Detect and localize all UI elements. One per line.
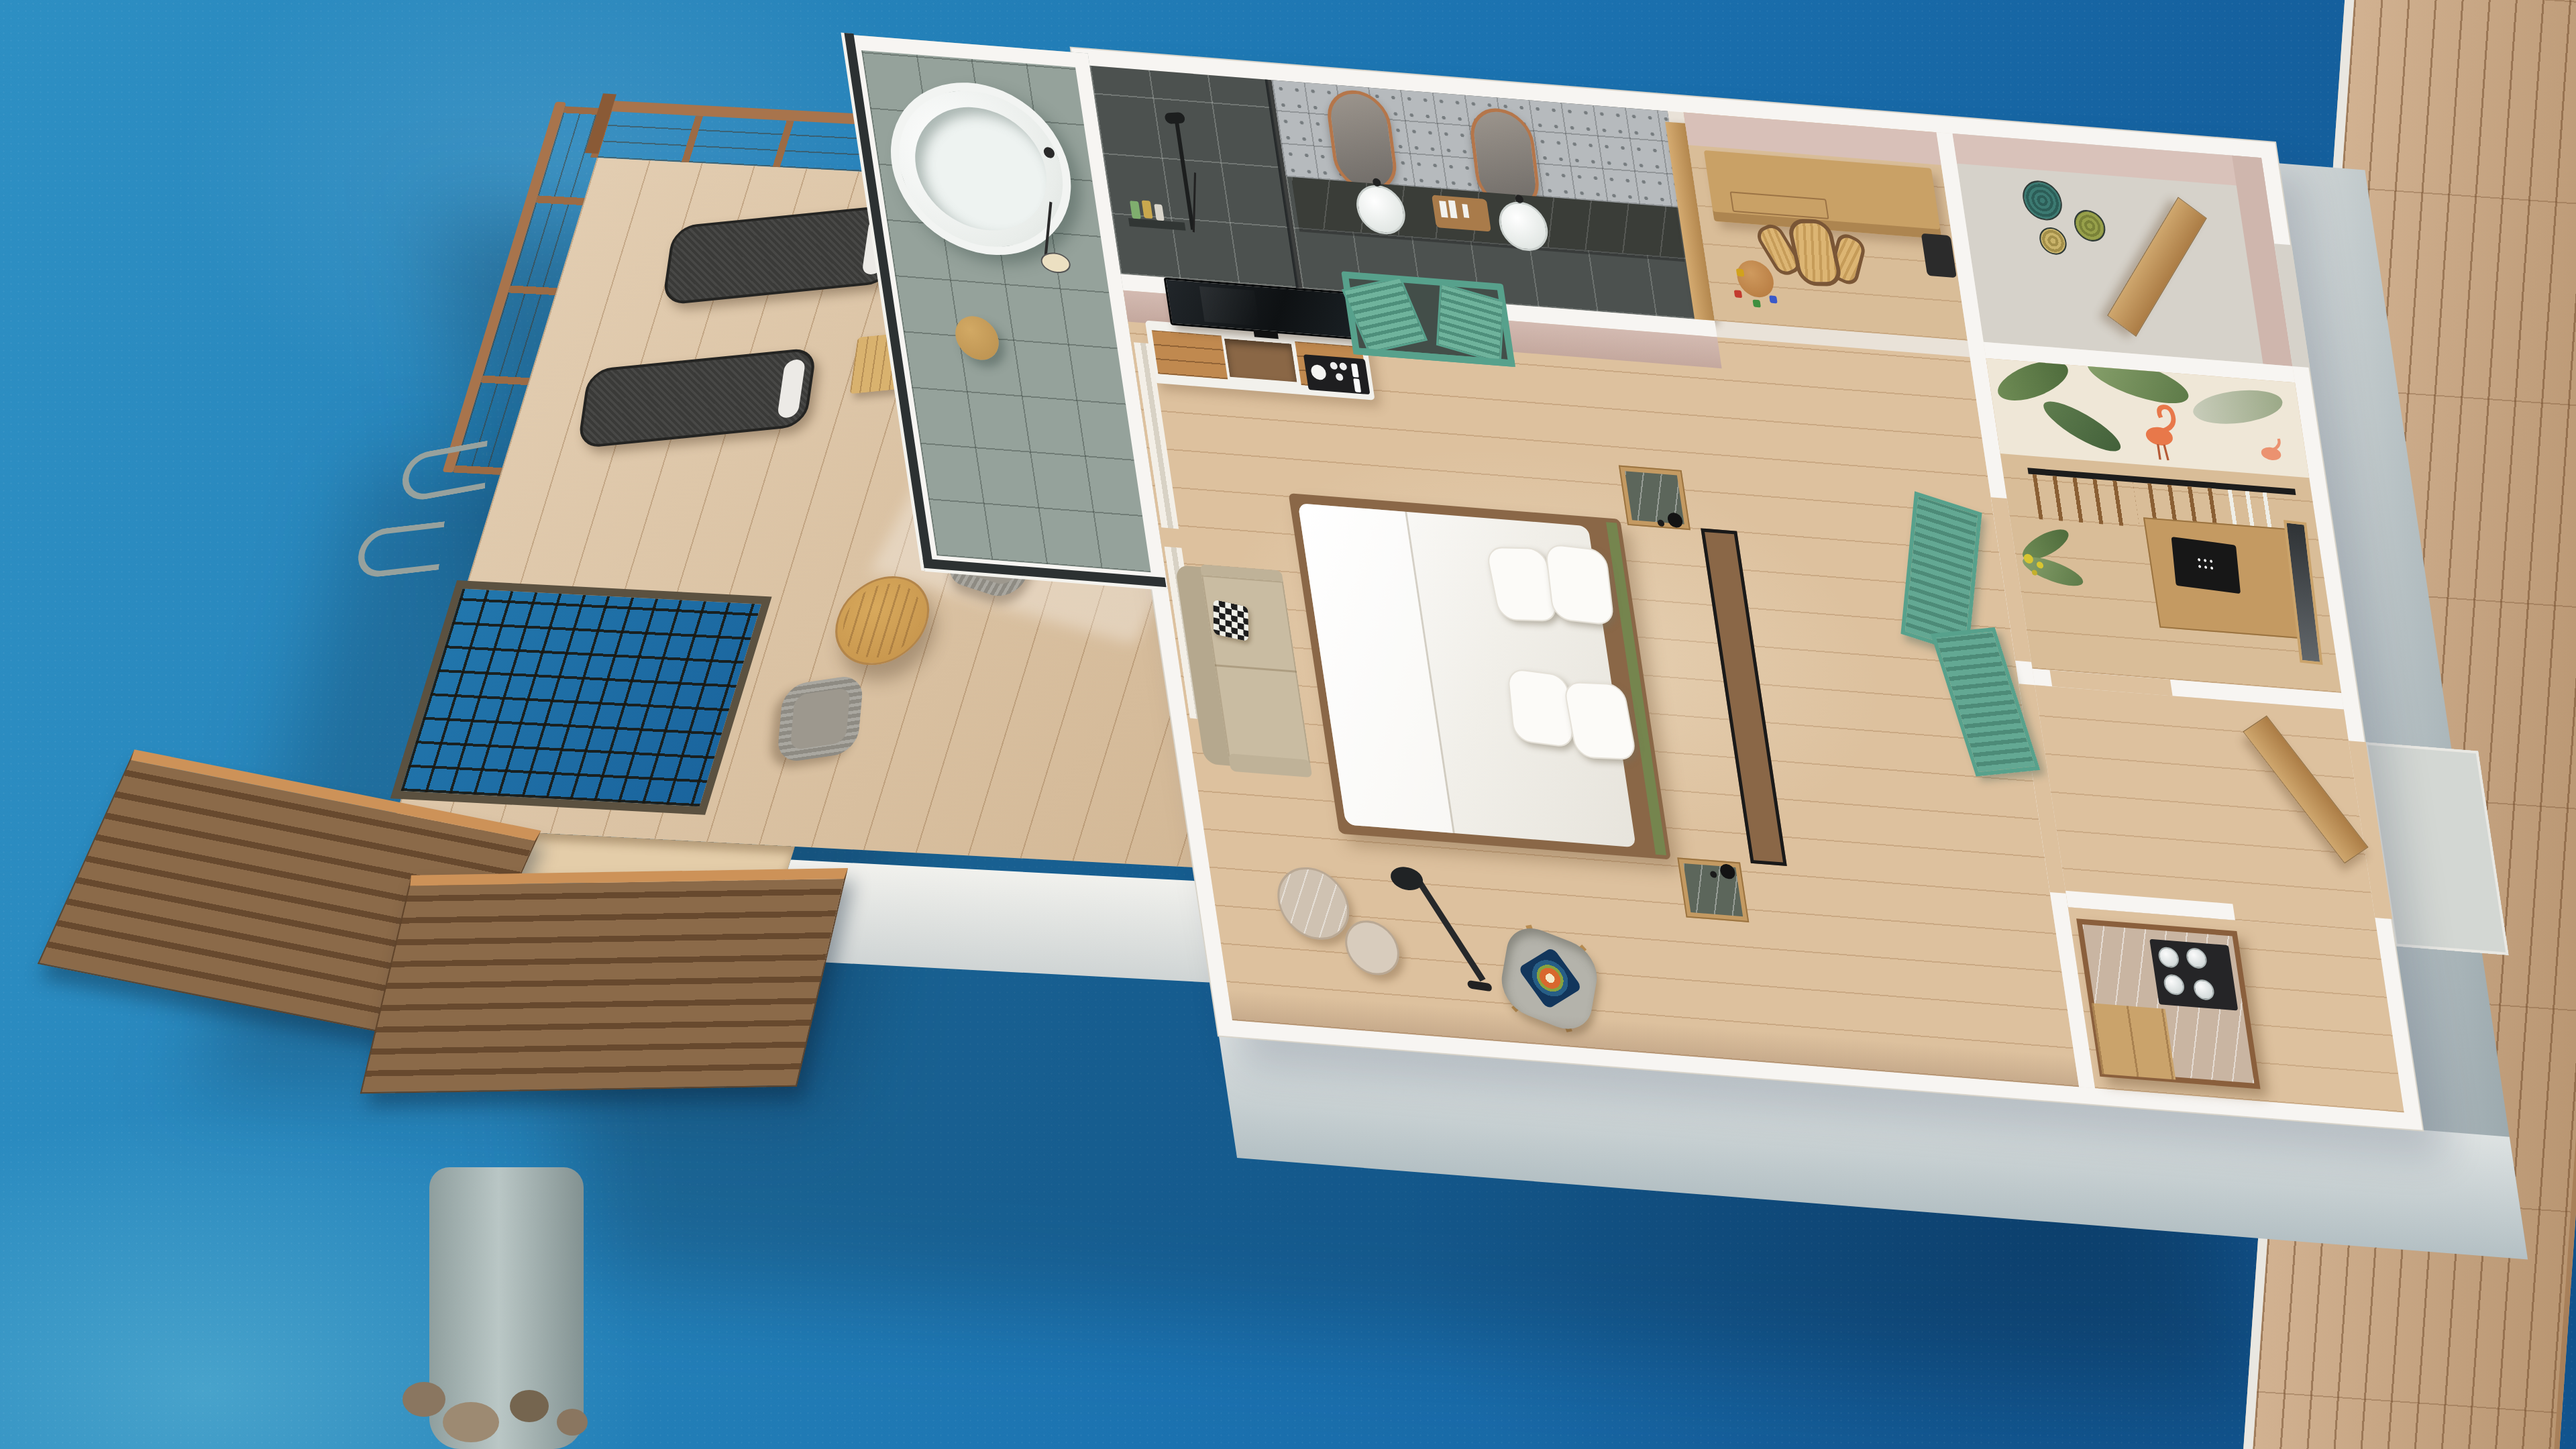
- cup: [1330, 362, 1338, 370]
- water-bottle: [1353, 378, 1361, 392]
- palm-leaf: [1991, 358, 2076, 409]
- stool-leg: [1736, 268, 1745, 276]
- stool-leg: [1769, 295, 1778, 303]
- console-shelf: [1224, 339, 1297, 382]
- water-bottle: [1351, 364, 1359, 378]
- stool-leg: [1734, 290, 1743, 298]
- rock: [443, 1402, 499, 1442]
- scene-stage: [0, 0, 2576, 1449]
- shower-head: [1164, 112, 1187, 124]
- rock: [510, 1390, 549, 1422]
- wooden-hangers: [2033, 474, 2140, 527]
- rock: [557, 1409, 588, 1436]
- stool-leg: [1752, 299, 1761, 307]
- nightstand-bottom: [1677, 857, 1749, 922]
- villa-structure: [376, 0, 2576, 1413]
- amenity-bottle: [1448, 200, 1458, 218]
- flamingo-motif: [2246, 417, 2298, 477]
- coffee-tray: [1303, 354, 1371, 394]
- rock: [402, 1382, 445, 1417]
- amenity-caddy: [1432, 195, 1491, 231]
- amenity-bottle: [1439, 201, 1448, 217]
- palm-leaf: [2039, 393, 2125, 460]
- room-safe: [2171, 537, 2241, 594]
- cup: [1335, 373, 1344, 381]
- minibar-cabinet-door: [2092, 1003, 2176, 1079]
- kettle: [1310, 364, 1327, 380]
- cup: [1339, 362, 1348, 370]
- amenity-bottle: [1462, 204, 1469, 218]
- console-drawer: [1152, 330, 1228, 379]
